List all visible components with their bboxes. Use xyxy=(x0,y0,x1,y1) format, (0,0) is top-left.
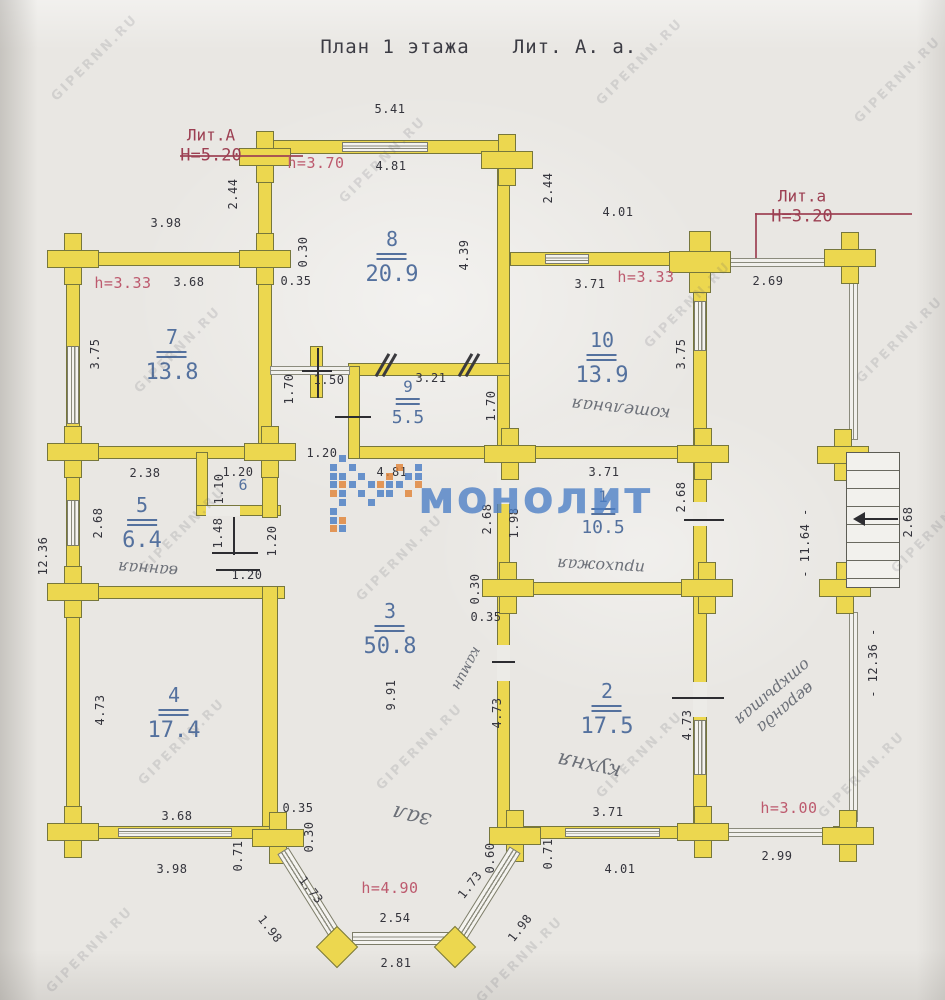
dimension-label: 2.68 xyxy=(674,482,688,513)
dimension-label: 0.71 xyxy=(541,839,555,870)
logo-mosaic-pixel xyxy=(405,490,412,497)
dimension-label: 1.48 xyxy=(211,518,225,549)
logo-mosaic-pixel xyxy=(330,525,337,532)
dimension-label: 3.75 xyxy=(88,339,102,370)
wall xyxy=(510,446,700,459)
dimension-label: 12.36 xyxy=(36,537,50,576)
door-mark xyxy=(335,416,371,418)
corner-post xyxy=(822,827,874,845)
handwritten-room-name: прихожая xyxy=(557,554,646,579)
corner-post xyxy=(47,583,99,601)
room-area: 50.8 xyxy=(364,634,417,659)
dimension-label: 9.91 xyxy=(384,680,398,711)
logo-mosaic-pixel xyxy=(339,525,346,532)
dimension-label: 1.70 xyxy=(282,374,296,405)
room-area: 13.9 xyxy=(576,363,629,388)
door-opening xyxy=(693,502,707,526)
room-label: 9 5.5 xyxy=(392,377,425,428)
logo-mosaic-pixel xyxy=(339,481,346,488)
wall xyxy=(262,586,278,834)
logo-mosaic-pixel xyxy=(386,473,393,480)
dimension-label: 1.98 xyxy=(255,913,285,946)
dimension-label: 4.01 xyxy=(603,205,634,219)
logo-mosaic-pixel xyxy=(339,455,346,462)
door-mark xyxy=(684,519,724,521)
dimension-label: 1.70 xyxy=(484,391,498,422)
dimension-label: 3.71 xyxy=(593,805,624,819)
logo-mosaic-pixel xyxy=(396,464,403,471)
corner-post xyxy=(482,579,534,597)
dimension-label: 1.50 xyxy=(314,373,345,387)
logo-mosaic-pixel xyxy=(349,464,356,471)
logo-mosaic-pixel xyxy=(405,473,412,480)
corner-post xyxy=(677,445,729,463)
handwritten-room-name: веранда открытая xyxy=(731,655,828,745)
logo-mosaic-pixel xyxy=(415,464,422,471)
dimension-label: 3.71 xyxy=(575,277,606,291)
dimension-label: - 11.64 - xyxy=(798,508,812,578)
room-number: 10 xyxy=(576,328,629,352)
monolit-logo-text: монолит xyxy=(418,471,652,524)
corner-post xyxy=(47,443,99,461)
dimension-label: 2.99 xyxy=(762,849,793,863)
gipernn-watermark: GIPERNN.RU xyxy=(374,701,467,794)
dimension-label: 3.98 xyxy=(157,862,188,876)
dimension-label: 2.68 xyxy=(91,508,105,539)
logo-mosaic-pixel xyxy=(339,517,346,524)
dimension-label: 3.75 xyxy=(674,339,688,370)
gipernn-watermark: GIPERNN.RU xyxy=(854,294,945,387)
lit-height: H=3.20 xyxy=(771,206,832,227)
door-mark xyxy=(492,661,515,663)
height-label: h=3.33 xyxy=(617,268,674,286)
dimension-label: 3.68 xyxy=(174,275,205,289)
room-area: 17.5 xyxy=(581,714,634,739)
window xyxy=(694,720,706,775)
dimension-label: 1.20 xyxy=(307,446,338,460)
room-number: 9 xyxy=(392,377,425,396)
dimension-label: 1.20 xyxy=(232,568,263,582)
corner-post xyxy=(484,445,536,463)
height-label: h=3.00 xyxy=(760,799,817,817)
logo-mosaic-pixel xyxy=(330,490,337,497)
corner-post xyxy=(681,579,733,597)
logo-mosaic-pixel xyxy=(330,517,337,524)
logo-mosaic-pixel xyxy=(396,481,403,488)
open-wall-line xyxy=(720,828,835,837)
door-mark xyxy=(302,370,332,372)
door-opening xyxy=(693,682,707,717)
dimension-label: 2.81 xyxy=(381,956,412,970)
window xyxy=(545,254,589,264)
dimension-label: 3.98 xyxy=(151,216,182,230)
room-underline xyxy=(592,705,622,712)
corner-post xyxy=(677,823,729,841)
logo-mosaic-pixel xyxy=(358,473,365,480)
door-mark xyxy=(233,517,235,555)
logo-mosaic-pixel xyxy=(349,481,356,488)
handwritten-room-name: котельная xyxy=(571,392,672,424)
dimension-label: 2.44 xyxy=(541,173,555,204)
window xyxy=(565,828,660,837)
room-label: 3 50.8 xyxy=(364,599,417,659)
height-label: h=4.90 xyxy=(361,879,418,897)
lit-height: H=5.20 xyxy=(180,145,241,166)
dimension-label: 4.01 xyxy=(605,862,636,876)
gipernn-watermark: GIPERNN.RU xyxy=(354,512,447,605)
logo-mosaic-pixel xyxy=(368,481,375,488)
dimension-label: 3.68 xyxy=(162,809,193,823)
logo-mosaic-pixel xyxy=(377,490,384,497)
room-number: 3 xyxy=(364,599,417,623)
wall xyxy=(348,366,360,459)
corner-post xyxy=(239,250,291,268)
room-label: 5 6.4 xyxy=(122,493,162,553)
logo-mosaic-pixel xyxy=(330,464,337,471)
room-label: 10 13.9 xyxy=(576,328,629,388)
window xyxy=(67,500,79,546)
logo-mosaic-pixel xyxy=(358,490,365,497)
handwritten-room-name: камин xyxy=(447,643,484,692)
handwritten-room-name: зал xyxy=(390,798,435,834)
dimension-label: 0.35 xyxy=(471,610,502,624)
dimension-label: 2.44 xyxy=(226,179,240,210)
gipernn-watermark: GIPERNN.RU xyxy=(816,729,909,822)
lit-underline xyxy=(755,213,757,258)
room-underline xyxy=(377,253,407,260)
window xyxy=(694,301,706,351)
dimension-label: 2.69 xyxy=(753,274,784,288)
lit-name: Лит.а xyxy=(771,186,832,206)
dimension-label: 4.73 xyxy=(93,695,107,726)
floorplan-scan: План 1 этажа Лит. А. а. 5.414.812.443.98… xyxy=(0,0,945,1000)
corner-post xyxy=(244,443,296,461)
door-mark xyxy=(212,552,258,554)
room-label: 2 17.5 xyxy=(581,679,634,739)
window xyxy=(118,828,232,837)
height-label: h=3.33 xyxy=(94,274,151,292)
wall xyxy=(497,154,510,460)
logo-mosaic-pixel xyxy=(377,481,384,488)
dimension-label: 0.30 xyxy=(302,822,316,853)
height-label: h=3.70 xyxy=(287,154,344,172)
corner-post xyxy=(239,148,291,166)
room-number: 2 xyxy=(581,679,634,703)
wall xyxy=(258,148,272,456)
lit-name: Лит.А xyxy=(180,125,241,145)
gipernn-watermark: GIPERNN.RU xyxy=(49,12,142,105)
room-label: 6 xyxy=(238,476,247,494)
corner-post xyxy=(47,250,99,268)
corner-post xyxy=(47,823,99,841)
open-wall-line xyxy=(849,282,858,440)
logo-mosaic-pixel xyxy=(368,499,375,506)
dimension-label: - 12.36 - xyxy=(866,628,880,698)
dimension-label: 4.39 xyxy=(457,240,471,271)
gipernn-watermark: GIPERNN.RU xyxy=(594,16,687,109)
room-area: 20.9 xyxy=(366,262,419,287)
wall xyxy=(510,582,700,595)
dimension-label: 0.35 xyxy=(283,801,314,815)
logo-mosaic-pixel xyxy=(330,473,337,480)
gipernn-watermark: GIPERNN.RU xyxy=(852,34,945,127)
room-number: 4 xyxy=(148,683,201,707)
gipernn-watermark: GIPERNN.RU xyxy=(337,114,430,207)
corner-post xyxy=(481,151,533,169)
room-number: 6 xyxy=(238,476,247,494)
plan-lit-text: Лит. А. а. xyxy=(513,36,637,58)
logo-mosaic-pixel xyxy=(386,490,393,497)
room-underline xyxy=(396,398,420,405)
lit-label: Лит.А H=5.20 xyxy=(180,125,241,166)
dimension-label: 0.30 xyxy=(468,574,482,605)
dimension-label: 0.30 xyxy=(296,237,310,268)
dimension-label: 0.71 xyxy=(231,841,245,872)
dimension-label: 0.60 xyxy=(483,843,497,874)
logo-mosaic-pixel xyxy=(339,473,346,480)
corner-post xyxy=(824,249,876,267)
door-mark xyxy=(672,697,724,699)
dimension-label: 4.73 xyxy=(490,698,504,729)
room-number: 5 xyxy=(122,493,162,517)
dimension-label: 1.20 xyxy=(265,526,279,557)
stairs-arrow-head xyxy=(846,512,865,526)
gipernn-watermark: GIPERNN.RU xyxy=(44,904,137,997)
logo-mosaic-pixel xyxy=(339,490,346,497)
dimension-label: 2.38 xyxy=(130,466,161,480)
room-underline xyxy=(375,625,405,632)
window xyxy=(67,346,79,424)
corner-post xyxy=(252,829,304,847)
open-wall-line xyxy=(723,258,835,267)
room-number: 8 xyxy=(366,227,419,251)
dimension-label: 0.35 xyxy=(281,274,312,288)
dimension-label: 2.68 xyxy=(901,507,915,538)
logo-mosaic-pixel xyxy=(330,481,337,488)
dimension-label: 2.54 xyxy=(380,911,411,925)
logo-mosaic-pixel xyxy=(386,481,393,488)
room-underline xyxy=(159,709,189,716)
lit-label: Лит.а H=3.20 xyxy=(771,186,832,227)
logo-mosaic-pixel xyxy=(339,499,346,506)
room-underline xyxy=(587,354,617,361)
room-area: 5.5 xyxy=(392,407,425,428)
room-underline xyxy=(127,519,157,526)
dimension-label: 5.41 xyxy=(375,102,406,116)
plan-title-text: План 1 этажа xyxy=(320,36,469,58)
logo-mosaic-pixel xyxy=(330,508,337,515)
room-label: 8 20.9 xyxy=(366,227,419,287)
door-opening xyxy=(497,645,510,681)
